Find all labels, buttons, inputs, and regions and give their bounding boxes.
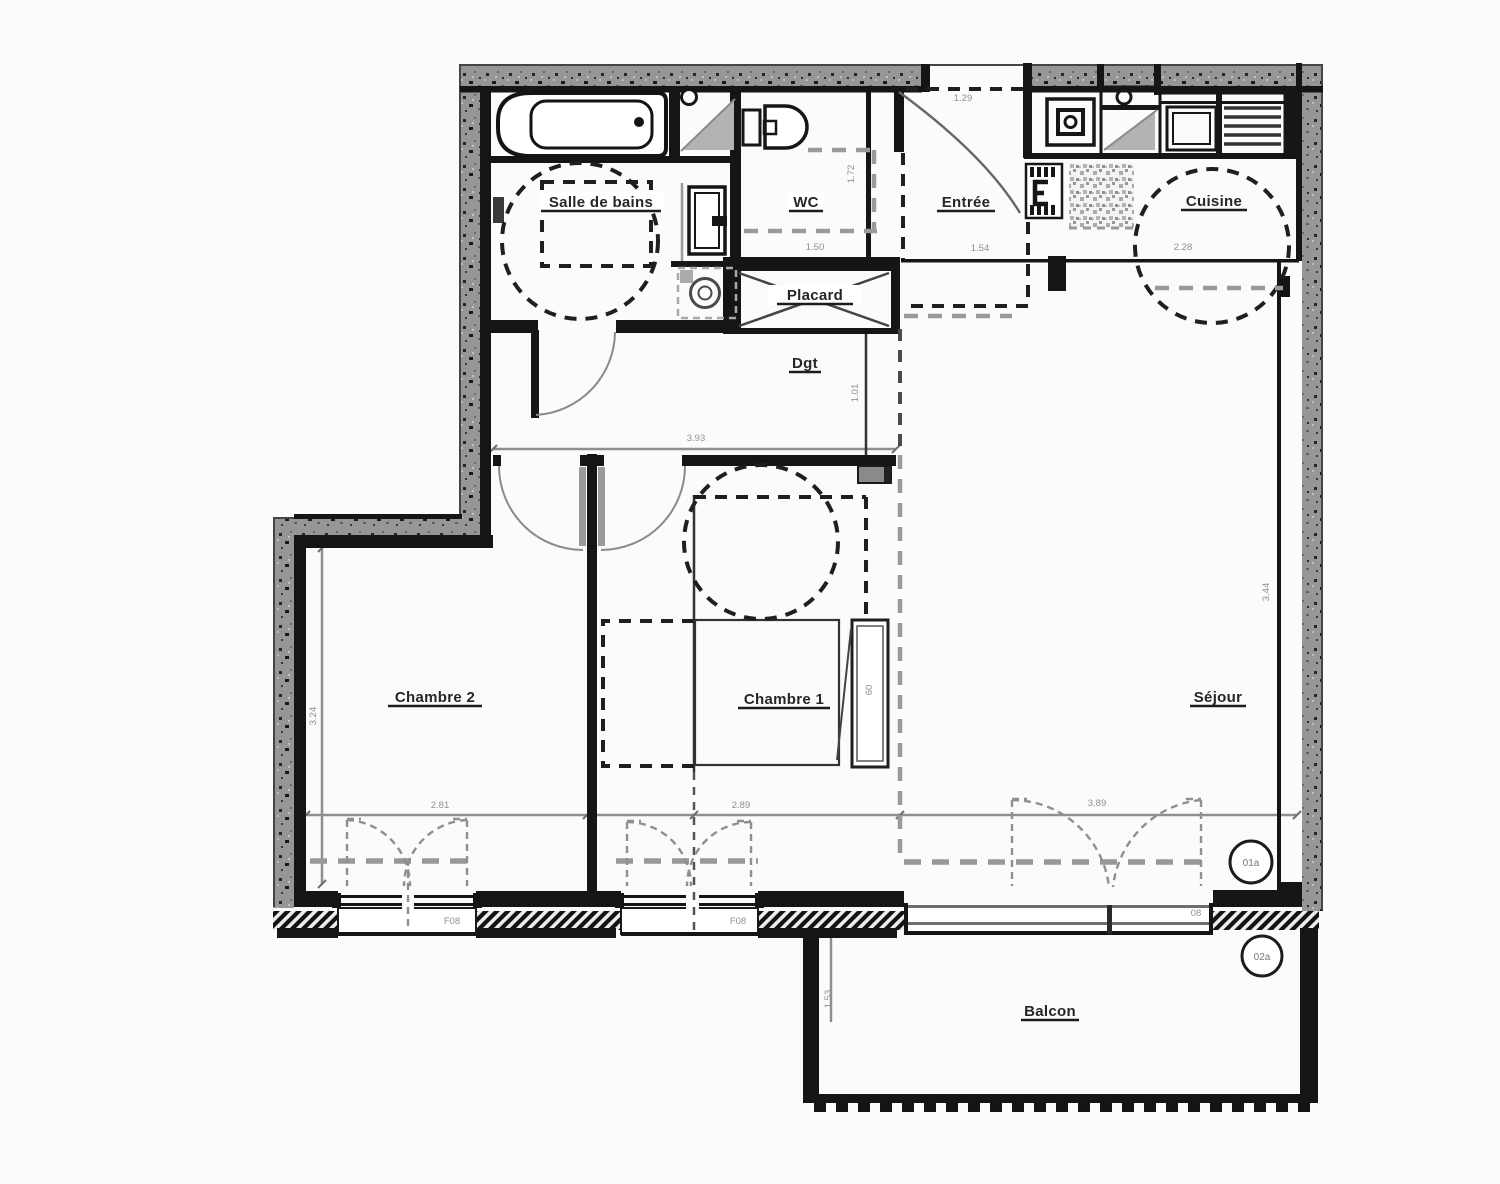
svg-text:WC: WC	[793, 194, 819, 211]
svg-text:2.28: 2.28	[1174, 242, 1193, 253]
svg-text:Chambre 1: Chambre 1	[744, 691, 824, 708]
svg-text:1.01: 1.01	[850, 384, 861, 403]
svg-text:F08: F08	[730, 916, 746, 927]
svg-text:F08: F08	[444, 916, 460, 927]
svg-text:2.89: 2.89	[732, 800, 751, 811]
svg-text:3.93: 3.93	[687, 433, 706, 444]
svg-text:1.53: 1.53	[823, 990, 834, 1009]
svg-text:2.81: 2.81	[431, 800, 450, 811]
svg-text:Placard: Placard	[787, 287, 843, 304]
svg-text:60: 60	[864, 685, 875, 696]
svg-text:Séjour: Séjour	[1194, 689, 1242, 706]
svg-text:Dgt: Dgt	[792, 355, 818, 372]
svg-text:1.50: 1.50	[806, 242, 825, 253]
svg-text:02a: 02a	[1254, 952, 1271, 963]
svg-text:3.89: 3.89	[1088, 798, 1107, 809]
svg-text:Entrée: Entrée	[942, 194, 991, 211]
svg-text:08: 08	[1191, 908, 1202, 919]
svg-text:1.29: 1.29	[954, 93, 973, 104]
svg-text:1.72: 1.72	[846, 165, 857, 184]
svg-text:Balcon: Balcon	[1024, 1003, 1076, 1020]
svg-text:Salle de bains: Salle de bains	[549, 194, 653, 211]
svg-text:01a: 01a	[1243, 858, 1260, 869]
svg-text:3.24: 3.24	[308, 707, 319, 726]
svg-text:Chambre 2: Chambre 2	[395, 689, 475, 706]
svg-text:1.54: 1.54	[971, 243, 990, 254]
svg-text:3.44: 3.44	[1261, 583, 1272, 602]
svg-text:Cuisine: Cuisine	[1186, 193, 1242, 210]
